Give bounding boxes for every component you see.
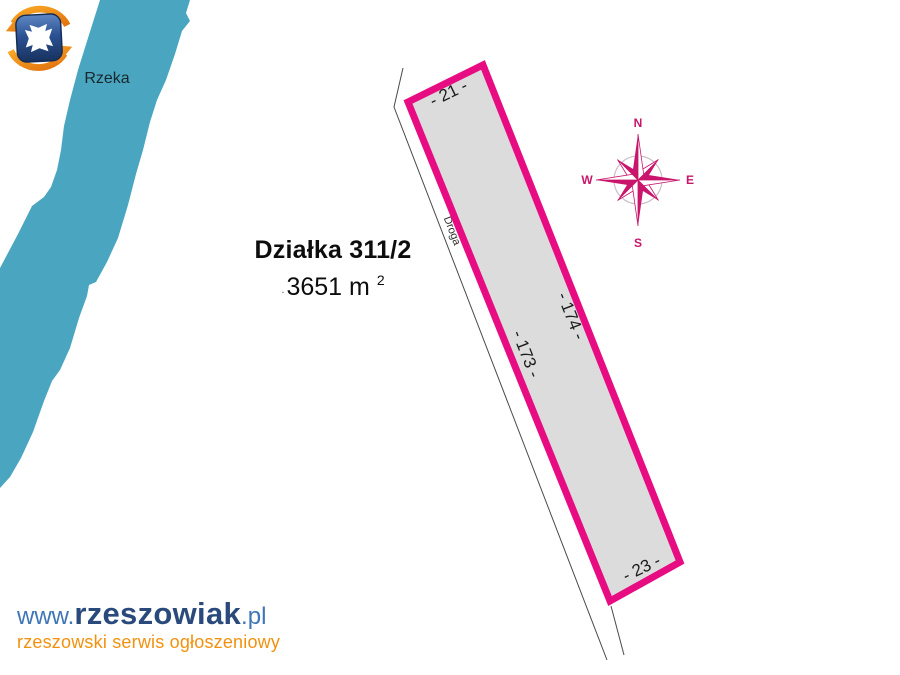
footer-tagline: rzeszowski serwis ogłoszeniowy (17, 633, 280, 651)
compass-label-w: W (581, 173, 593, 187)
parcel-area: .3651 m2 (233, 272, 433, 302)
parcel-map-canvas: Rzeka Droga - 21 - - 174 - - 173 - - 23 … (0, 0, 900, 675)
stray-dot: . (281, 284, 284, 296)
road-line-right (611, 606, 624, 655)
footer-site-name: www.rzeszowiak.pl (17, 598, 280, 629)
map-drawing: Rzeka Droga - 21 - - 174 - - 173 - - 23 … (0, 0, 900, 675)
parcel-info: Działka 311/2 .3651 m2 (233, 236, 433, 302)
compass-label-n: N (634, 116, 643, 130)
parcel-area-exponent: 2 (377, 272, 385, 288)
footer-wordmark: www.rzeszowiak.pl rzeszowski serwis ogło… (17, 598, 280, 651)
parcel-title: Działka 311/2 (233, 236, 433, 265)
compass-label-s: S (634, 236, 642, 250)
footer-tld: .pl (241, 603, 266, 630)
rzeszowiak-logo-icon (0, 0, 78, 78)
compass-rose-icon: N E S W (581, 116, 694, 250)
footer-www: www. (17, 603, 74, 630)
footer-brand: rzeszowiak (74, 596, 241, 631)
parcel-area-value: 3651 m (286, 273, 369, 301)
compass-label-e: E (686, 173, 694, 187)
river-label: Rzeka (84, 70, 129, 87)
